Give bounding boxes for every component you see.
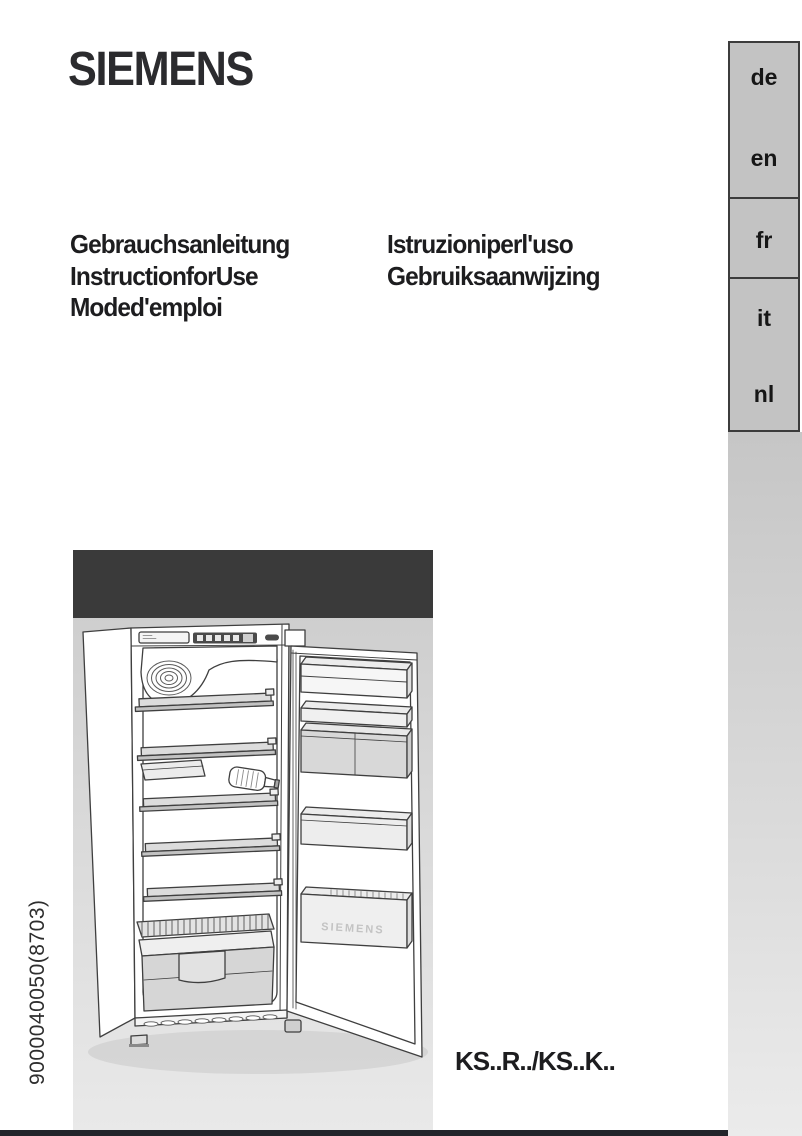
small-tray	[141, 760, 205, 780]
light-switch	[265, 635, 279, 641]
right-foot	[285, 1020, 301, 1032]
page-edge-strip	[728, 432, 802, 1136]
language-tab-nl: nl	[730, 381, 798, 408]
control-panel	[139, 632, 189, 643]
title-italian: Istruzioniperl'uso	[387, 229, 600, 261]
refrigerator-illustration: SIEMENS	[73, 550, 433, 1130]
tab-divider	[728, 277, 800, 279]
language-tab-it: it	[730, 305, 798, 332]
title-dutch: Gebruiksaanwijzing	[387, 261, 600, 293]
title-column-left: Gebrauchsanleitung InstructionforUse Mod…	[70, 229, 289, 324]
title-german: Gebrauchsanleitung	[70, 229, 289, 261]
document-number: 9000040050(8703)	[26, 900, 50, 1086]
crisper-handle	[179, 951, 225, 983]
title-english: InstructionforUse	[70, 261, 289, 293]
language-tab-en: en	[730, 145, 798, 172]
title-column-right: Istruzioniperl'uso Gebruiksaanwijzing	[387, 229, 600, 292]
model-code: KS..R../KS..K..	[455, 1046, 615, 1077]
language-tab-de: de	[730, 64, 798, 91]
language-tab-panel: de en fr it nl	[728, 41, 800, 432]
top-hinge-bracket	[285, 630, 305, 646]
brand-logo: SIEMENS	[68, 42, 253, 97]
language-tab-fr: fr	[730, 227, 798, 254]
title-french: Moded'emploi	[70, 292, 289, 324]
tab-divider	[728, 197, 800, 199]
left-foot	[131, 1035, 147, 1045]
bottom-rule	[0, 1130, 728, 1136]
illustration-header-band	[73, 550, 433, 618]
